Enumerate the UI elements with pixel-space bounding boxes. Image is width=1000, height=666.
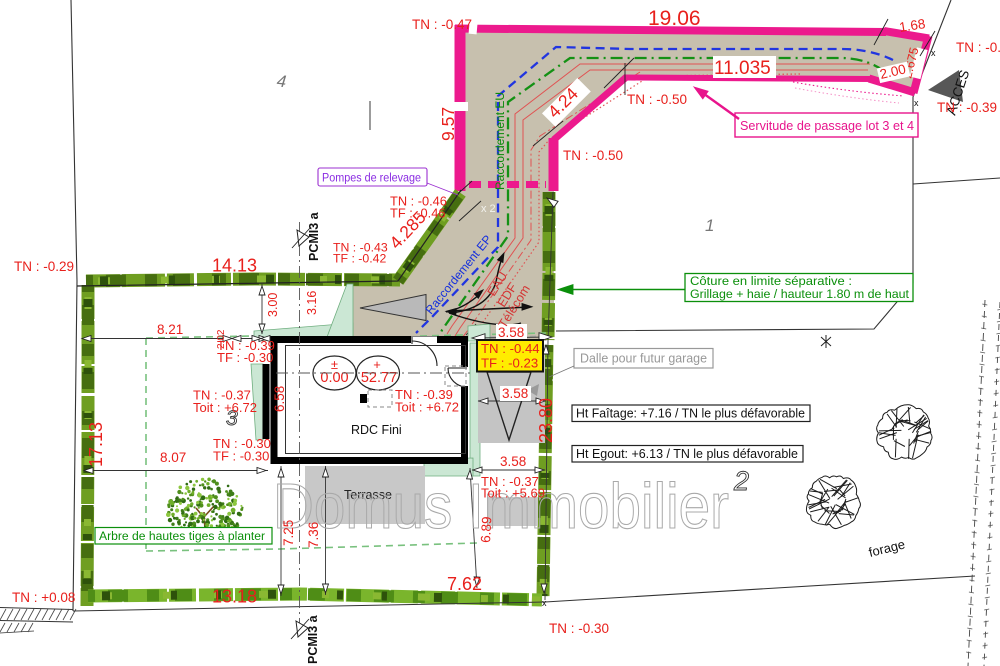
svg-text:23.80: 23.80 xyxy=(536,398,556,443)
svg-text:Pompes de relevage: Pompes de relevage xyxy=(322,171,421,185)
svg-text:3.16: 3.16 xyxy=(305,291,319,315)
svg-text:TN : -0.47: TN : -0.47 xyxy=(412,17,472,32)
svg-text:9.57: 9.57 xyxy=(438,107,458,141)
svg-text:Dalle pour futur garage: Dalle pour futur garage xyxy=(580,351,707,366)
svg-text:TN : -0.50: TN : -0.50 xyxy=(627,92,687,107)
svg-text:3.58: 3.58 xyxy=(502,386,528,401)
svg-text:TN : -0.4: TN : -0.4 xyxy=(956,40,1000,55)
svg-text:x: x xyxy=(542,598,547,608)
svg-text:Toit : +6.72: Toit : +6.72 xyxy=(193,400,257,415)
svg-text:Raccordement EU: Raccordement EU xyxy=(493,92,507,190)
svg-text:TF : -0.30: TF : -0.30 xyxy=(213,449,269,464)
svg-text:TN : +0.08: TN : +0.08 xyxy=(12,590,75,605)
svg-text:17.13: 17.13 xyxy=(86,422,106,467)
svg-text:RDC Fini: RDC Fini xyxy=(351,423,402,437)
svg-text:TF : -0.23: TF : -0.23 xyxy=(481,356,538,371)
svg-text:14.13: 14.13 xyxy=(212,256,257,276)
svg-text:7.25: 7.25 xyxy=(281,520,296,546)
svg-text:x 2: x 2 xyxy=(481,203,496,215)
svg-text:Ht Faîtage: +7.16 / TN le plus: Ht Faîtage: +7.16 / TN le plus défavorab… xyxy=(576,406,805,421)
svg-text:TN : -0.44: TN : -0.44 xyxy=(481,341,540,356)
svg-text:3.58: 3.58 xyxy=(500,454,526,469)
svg-text:Côture en limite séparative :: Côture en limite séparative : xyxy=(690,274,852,288)
svg-text:7.36: 7.36 xyxy=(306,522,321,548)
svg-text:x: x xyxy=(931,48,936,58)
svg-text:TF : -0.42: TF : -0.42 xyxy=(333,252,386,266)
svg-text:Toit : +6.72: Toit : +6.72 xyxy=(395,400,459,415)
svg-text:6.89: 6.89 xyxy=(478,516,494,543)
svg-text:13.18: 13.18 xyxy=(212,587,257,607)
svg-text:4: 4 xyxy=(276,71,287,91)
svg-text:Arbre de hautes tiges à plante: Arbre de hautes tiges à planter xyxy=(99,529,265,543)
svg-text:TN : -0.50: TN : -0.50 xyxy=(563,148,623,163)
svg-text:TN : -0.39: TN : -0.39 xyxy=(937,100,997,115)
svg-text:8.21: 8.21 xyxy=(157,322,183,337)
svg-text:11.035: 11.035 xyxy=(714,58,771,79)
svg-text:Servitude de passage lot 3 et: Servitude de passage lot 3 et 4 xyxy=(740,118,914,133)
svg-text:19.06: 19.06 xyxy=(648,7,701,30)
svg-text:6.58: 6.58 xyxy=(272,386,287,412)
svg-text:1: 1 xyxy=(705,216,714,235)
svg-text:TF : -0.30: TF : -0.30 xyxy=(217,350,273,365)
svg-text:52.77: 52.77 xyxy=(361,370,397,386)
svg-text:7.62: 7.62 xyxy=(447,574,482,594)
svg-text:3.00: 3.00 xyxy=(266,293,280,317)
svg-text:2: 2 xyxy=(733,466,749,496)
svg-text:Toit : +5.69: Toit : +5.69 xyxy=(481,486,545,501)
svg-text:Grillage + haie / hauteur 1.80: Grillage + haie / hauteur 1.80 m de haut xyxy=(690,287,910,301)
svg-text:PCMI3 a: PCMI3 a xyxy=(306,614,320,664)
svg-text:TN : -0.30: TN : -0.30 xyxy=(549,621,609,636)
svg-text:TN : -0.29: TN : -0.29 xyxy=(14,259,74,274)
svg-text:0.00: 0.00 xyxy=(320,370,348,386)
svg-text:Ht Egout: +6.13 / TN le plus d: Ht Egout: +6.13 / TN le plus défavorable xyxy=(576,446,798,461)
svg-text:x: x xyxy=(914,98,919,108)
svg-text:8.07: 8.07 xyxy=(160,450,186,465)
svg-text:PCMI3 a: PCMI3 a xyxy=(307,211,321,261)
